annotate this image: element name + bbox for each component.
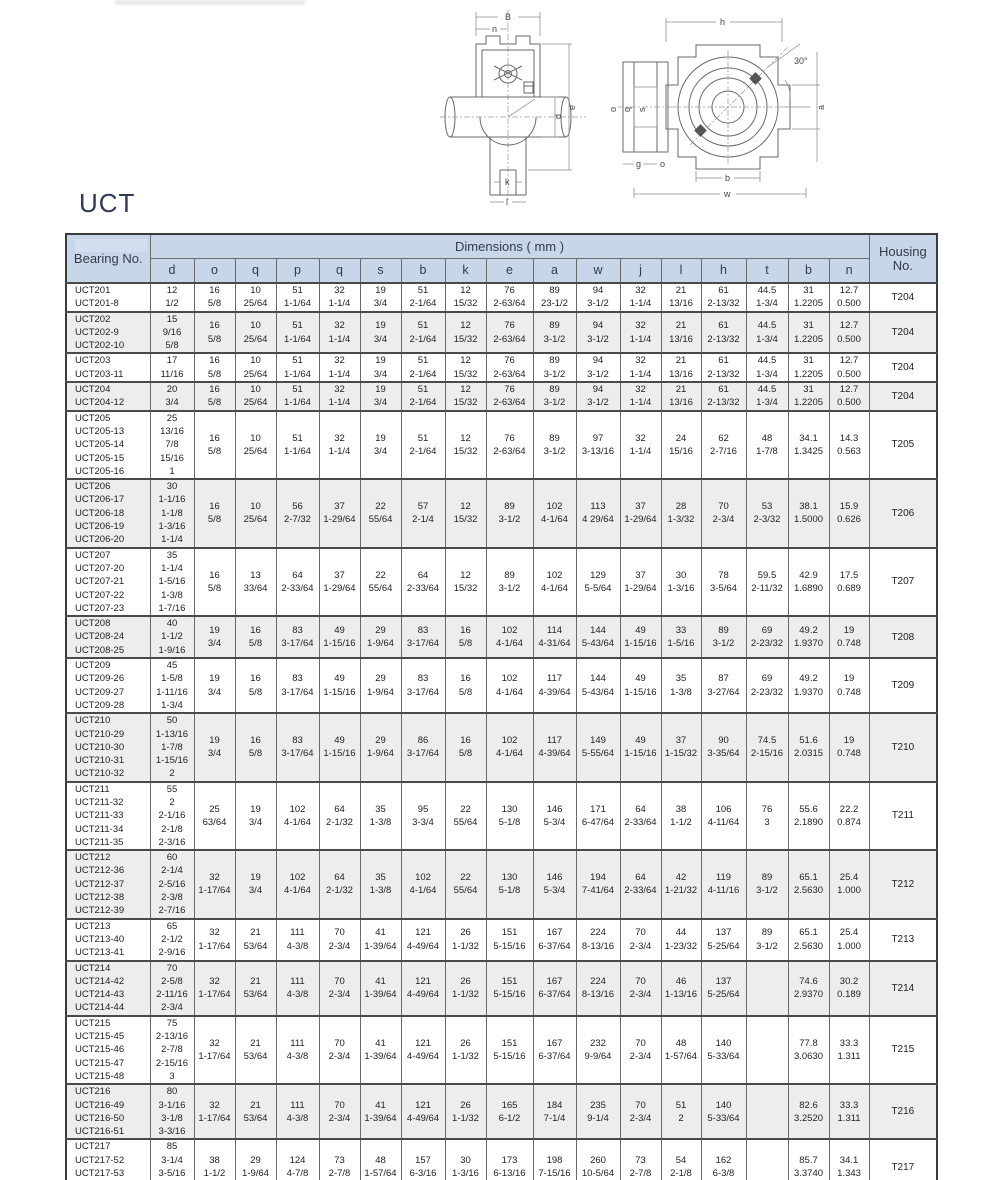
column-header-p: p: [276, 258, 319, 283]
bearing-row-UCT217: UCT217UCT217-52UCT217-53UCT217-55853-1/4…: [66, 1139, 937, 1180]
bearing-row-UCT216: UCT216UCT216-49UCT216-50UCT216-51803-1/1…: [66, 1084, 937, 1139]
dim-cell-t-13: 893-1/2: [746, 919, 788, 961]
bearing-row-UCT204: UCT204UCT204-12203/4165/81025/64511-1/64…: [66, 382, 937, 411]
dim-cell-j-10: 732-7/8: [620, 1139, 661, 1180]
dim-cell-q-3: 321-1/4: [319, 382, 360, 411]
dim-cell-k-6: 1215/32: [445, 411, 486, 479]
shaft-dia-cell: 752-13/162-7/82-15/163: [150, 1016, 194, 1084]
take-up-unit-drawing: B n: [438, 2, 878, 206]
dim-cell-b-14: 311.2205: [788, 353, 829, 382]
dim-cell-p-2: 511-1/64: [276, 411, 319, 479]
housing-no-cell: T212: [869, 850, 937, 918]
dim-cell-j-10: 371-29/64: [620, 479, 661, 547]
dim-cell-e-7: 1736-13/16: [486, 1139, 533, 1180]
dim-cell-b-14: 42.91.6890: [788, 548, 829, 616]
dim-cell-s-4: 193/4: [360, 382, 401, 411]
dim-cell-p-2: 1024-1/64: [276, 850, 319, 918]
dim-cell-a-8: 893-1/2: [533, 411, 576, 479]
dim-label-30deg: 30°: [794, 56, 808, 66]
dim-cell-w-9: 1445-43/64: [576, 616, 620, 658]
dim-cell-o-0: 321-17/64: [194, 850, 235, 918]
dim-cell-b-5: 833-17/64: [401, 658, 445, 713]
dim-cell-o-0: 165/8: [194, 283, 235, 312]
dim-cell-l-11: 421-21/32: [661, 850, 701, 918]
dim-cell-q-3: 732-7/8: [319, 1139, 360, 1180]
shaft-dia-cell: 853-1/43-5/163-7/16: [150, 1139, 194, 1180]
bearing-numbers-cell: UCT208UCT208-24UCT208-25: [66, 616, 150, 658]
page-top-artifact: [115, 0, 305, 5]
dim-cell-b-5: 572-1/4: [401, 479, 445, 547]
dim-cell-n-15: 33.31.311: [829, 1016, 869, 1084]
dim-cell-j-10: 371-29/64: [620, 548, 661, 616]
bearing-row-UCT201: UCT201UCT201-8121/2165/81025/64511-1/643…: [66, 283, 937, 312]
dim-cell-t-13: [746, 961, 788, 1016]
dim-cell-j-10: 491-15/16: [620, 616, 661, 658]
dim-cell-q-3: 321-1/4: [319, 411, 360, 479]
housing-no-cell: T204: [869, 353, 937, 382]
dim-cell-b-14: 82.63.2520: [788, 1084, 829, 1139]
dim-label-b: b: [725, 173, 730, 183]
dim-cell-e-7: 1024-1/64: [486, 713, 533, 781]
dim-cell-q-1: 1025/64: [235, 411, 276, 479]
housing-no-cell: T204: [869, 283, 937, 312]
dim-label-o-bottom: o: [660, 159, 665, 169]
dim-cell-b-5: 1214-49/64: [401, 1016, 445, 1084]
dim-cell-b-14: 38.11.5000: [788, 479, 829, 547]
dim-cell-o-0: 165/8: [194, 312, 235, 354]
bearing-row-UCT206: UCT206UCT206-17UCT206-18UCT206-19UCT206-…: [66, 479, 937, 547]
dim-cell-q-1: 1025/64: [235, 479, 276, 547]
dim-cell-w-9: 26010-5/64: [576, 1139, 620, 1180]
dim-cell-t-13: 763: [746, 782, 788, 850]
dim-cell-o-0: 381-1/2: [194, 1139, 235, 1180]
bearing-numbers-cell: UCT212UCT212-36UCT212-37UCT212-38UCT212-…: [66, 850, 150, 918]
dim-cell-l-11: 461-13/16: [661, 961, 701, 1016]
dim-cell-s-4: 291-9/64: [360, 616, 401, 658]
dim-cell-j-10: 321-1/4: [620, 411, 661, 479]
dim-label-B: B: [505, 12, 511, 22]
dim-cell-q-1: 2153/64: [235, 1084, 276, 1139]
dim-cell-p-2: 1114-3/8: [276, 919, 319, 961]
bearing-row-UCT215: UCT215UCT215-45UCT215-46UCT215-47UCT215-…: [66, 1016, 937, 1084]
dim-cell-w-9: 1445-43/64: [576, 658, 620, 713]
housing-no-cell: T208: [869, 616, 937, 658]
column-header-h: h: [701, 258, 746, 283]
dim-cell-k-6: 2255/64: [445, 782, 486, 850]
dim-cell-h-12: 612-13/32: [701, 382, 746, 411]
dim-cell-t-13: 692-23/32: [746, 616, 788, 658]
shaft-dia-cell: 451-5/81-11/161-3/4: [150, 658, 194, 713]
dim-cell-o-0: 2563/64: [194, 782, 235, 850]
dim-cell-p-2: 1114-3/8: [276, 1016, 319, 1084]
dim-cell-q-1: 165/8: [235, 616, 276, 658]
column-header-d: d: [150, 258, 194, 283]
bearing-row-UCT211: UCT211UCT211-32UCT211-33UCT211-34UCT211-…: [66, 782, 937, 850]
bearing-row-UCT210: UCT210UCT210-29UCT210-30UCT210-31UCT210-…: [66, 713, 937, 781]
dim-cell-j-10: 491-15/16: [620, 658, 661, 713]
dim-cell-e-7: 1515-15/16: [486, 919, 533, 961]
housing-no-cell: T209: [869, 658, 937, 713]
dim-cell-e-7: 762-63/64: [486, 353, 533, 382]
housing-no-cell: T214: [869, 961, 937, 1016]
dim-cell-o-0: 193/4: [194, 658, 235, 713]
dim-cell-n-15: 30.20.189: [829, 961, 869, 1016]
table-body: UCT201UCT201-8121/2165/81025/64511-1/643…: [66, 283, 937, 1180]
dim-cell-l-11: 481-57/64: [661, 1016, 701, 1084]
series-title: UCT: [79, 188, 135, 219]
bearing-numbers-cell: UCT202UCT202-9UCT202-10: [66, 312, 150, 354]
dim-cell-w-9: 1134 29/64: [576, 479, 620, 547]
dim-label-o-left: o: [608, 107, 618, 112]
housing-no-cell: T215: [869, 1016, 937, 1084]
dim-cell-w-9: 2359-1/4: [576, 1084, 620, 1139]
dim-cell-b-5: 642-33/64: [401, 548, 445, 616]
dim-cell-l-11: 2113/16: [661, 353, 701, 382]
dim-cell-k-6: 165/8: [445, 616, 486, 658]
housing-no-cell: T207: [869, 548, 937, 616]
dim-cell-e-7: 762-63/64: [486, 312, 533, 354]
dim-cell-w-9: 1947-41/64: [576, 850, 620, 918]
dim-cell-s-4: 411-39/64: [360, 1016, 401, 1084]
dim-label-w: w: [723, 189, 731, 199]
dim-cell-p-2: 511-1/64: [276, 283, 319, 312]
dim-cell-w-9: 1495-55/64: [576, 713, 620, 781]
dim-cell-w-9: 2248-13/16: [576, 961, 620, 1016]
dim-cell-a-8: 1174-39/64: [533, 713, 576, 781]
dim-cell-b-14: 65.12.5630: [788, 919, 829, 961]
dim-cell-t-13: 44.51-3/4: [746, 353, 788, 382]
column-header-o: o: [194, 258, 235, 283]
dim-cell-b-14: 74.62.9370: [788, 961, 829, 1016]
dim-cell-h-12: 893-1/2: [701, 616, 746, 658]
dim-cell-a-8: 1676-37/64: [533, 1016, 576, 1084]
dim-cell-b-14: 311.2205: [788, 283, 829, 312]
dim-cell-l-11: 381-1/2: [661, 782, 701, 850]
dim-cell-l-11: 441-23/32: [661, 919, 701, 961]
dim-label-h: h: [720, 17, 725, 27]
dim-cell-q-3: 642-1/32: [319, 850, 360, 918]
bearing-numbers-cell: UCT207UCT207-20UCT207-21UCT207-22UCT207-…: [66, 548, 150, 616]
catalog-page: B n: [0, 0, 992, 1180]
dim-cell-q-1: 1025/64: [235, 312, 276, 354]
watermark-smudge: [75, 239, 147, 252]
dim-cell-b-14: 51.62.0315: [788, 713, 829, 781]
bearing-numbers-cell: UCT206UCT206-17UCT206-18UCT206-19UCT206-…: [66, 479, 150, 547]
dim-cell-b-5: 512-1/64: [401, 411, 445, 479]
dim-cell-s-4: 351-3/8: [360, 782, 401, 850]
dim-cell-s-4: 411-39/64: [360, 919, 401, 961]
dim-cell-n-15: 190.748: [829, 616, 869, 658]
dim-cell-o-0: 193/4: [194, 713, 235, 781]
dim-cell-j-10: 702-3/4: [620, 1084, 661, 1139]
dim-cell-o-0: 165/8: [194, 411, 235, 479]
dim-cell-b-14: 34.11.3425: [788, 411, 829, 479]
dim-label-e: e: [567, 105, 577, 110]
front-view-drawing: h 30°: [608, 17, 826, 199]
dim-cell-q-3: 371-29/64: [319, 548, 360, 616]
dim-cell-h-12: 1375-25/64: [701, 961, 746, 1016]
dim-cell-n-15: 22.20.874: [829, 782, 869, 850]
column-header-q: q: [235, 258, 276, 283]
dim-cell-l-11: 331-5/16: [661, 616, 701, 658]
dim-cell-o-0: 321-17/64: [194, 919, 235, 961]
dim-cell-a-8: 893-1/2: [533, 382, 576, 411]
dim-cell-p-2: 1244-7/8: [276, 1139, 319, 1180]
dim-cell-b-5: 863-17/64: [401, 713, 445, 781]
dim-cell-w-9: 943-1/2: [576, 382, 620, 411]
dim-cell-b-14: 49.21.9370: [788, 658, 829, 713]
dim-cell-s-4: 481-57/64: [360, 1139, 401, 1180]
dim-cell-e-7: 1305-1/8: [486, 850, 533, 918]
housing-no-cell: T206: [869, 479, 937, 547]
bearing-row-UCT213: UCT213UCT213-40UCT213-41652-1/22-9/16321…: [66, 919, 937, 961]
dim-cell-t-13: 44.51-3/4: [746, 382, 788, 411]
dim-cell-k-6: 261-1/32: [445, 961, 486, 1016]
bearing-row-UCT205: UCT205UCT205-13UCT205-14UCT205-15UCT205-…: [66, 411, 937, 479]
dim-cell-j-10: 642-33/64: [620, 850, 661, 918]
dim-cell-t-13: 44.51-3/4: [746, 283, 788, 312]
shaft-dia-cell: 652-1/22-9/16: [150, 919, 194, 961]
dim-label-g: g: [636, 159, 641, 169]
dim-cell-a-8: 1847-1/4: [533, 1084, 576, 1139]
shaft-dia-cell: 803-1/163-1/83-3/16: [150, 1084, 194, 1139]
dim-cell-q-1: 1025/64: [235, 353, 276, 382]
dim-cell-j-10: 321-1/4: [620, 283, 661, 312]
housing-no-header: Housing No.: [869, 234, 937, 283]
dim-cell-w-9: 943-1/2: [576, 353, 620, 382]
dim-cell-q-1: 1333/64: [235, 548, 276, 616]
dim-cell-t-13: 532-3/32: [746, 479, 788, 547]
dim-cell-k-6: 1215/32: [445, 479, 486, 547]
shaft-dia-cell: 159/165/8: [150, 312, 194, 354]
dim-cell-w-9: 943-1/2: [576, 312, 620, 354]
dim-cell-q-3: 702-3/4: [319, 1016, 360, 1084]
table-header: Bearing No. Dimensions ( mm ) Housing No…: [66, 234, 937, 283]
dim-cell-s-4: 411-39/64: [360, 1084, 401, 1139]
dim-cell-h-12: 622-7/16: [701, 411, 746, 479]
housing-no-cell: T205: [869, 411, 937, 479]
dim-cell-n-15: 190.748: [829, 658, 869, 713]
dim-cell-b-5: 1214-49/64: [401, 1084, 445, 1139]
dim-label-k: k: [505, 177, 510, 187]
shaft-dia-cell: 602-1/42-5/162-3/82-7/16: [150, 850, 194, 918]
dim-cell-n-15: 12.70.500: [829, 283, 869, 312]
dim-cell-a-8: 1024-1/64: [533, 479, 576, 547]
dim-cell-k-6: 301-3/16: [445, 1139, 486, 1180]
dim-cell-h-12: 612-13/32: [701, 353, 746, 382]
dim-cell-e-7: 1024-1/64: [486, 616, 533, 658]
dim-cell-k-6: 165/8: [445, 658, 486, 713]
dim-cell-h-12: 612-13/32: [701, 283, 746, 312]
dim-cell-h-12: 1064-11/64: [701, 782, 746, 850]
housing-no-cell: T216: [869, 1084, 937, 1139]
dim-cell-l-11: 301-3/16: [661, 548, 701, 616]
dim-cell-q-3: 321-1/4: [319, 312, 360, 354]
dim-cell-n-15: 12.70.500: [829, 382, 869, 411]
dim-cell-b-5: 1214-49/64: [401, 919, 445, 961]
dim-cell-h-12: 1375-25/64: [701, 919, 746, 961]
dim-cell-q-3: 702-3/4: [319, 1084, 360, 1139]
bearing-numbers-cell: UCT205UCT205-13UCT205-14UCT205-15UCT205-…: [66, 411, 150, 479]
dim-cell-p-2: 833-17/64: [276, 658, 319, 713]
dim-cell-b-14: 311.2205: [788, 382, 829, 411]
column-header-b: b: [788, 258, 829, 283]
dim-label-l: l: [506, 197, 508, 206]
dim-cell-n-15: 33.31.311: [829, 1084, 869, 1139]
dim-cell-b-5: 512-1/64: [401, 312, 445, 354]
housing-no-cell: T217: [869, 1139, 937, 1180]
dim-cell-h-12: 903-35/64: [701, 713, 746, 781]
bearing-numbers-cell: UCT215UCT215-45UCT215-46UCT215-47UCT215-…: [66, 1016, 150, 1084]
housing-no-cell: T210: [869, 713, 937, 781]
column-header-q: q: [319, 258, 360, 283]
dim-cell-j-10: 321-1/4: [620, 353, 661, 382]
dim-cell-q-1: 193/4: [235, 782, 276, 850]
housing-no-cell: T204: [869, 312, 937, 354]
bearing-numbers-cell: UCT211UCT211-32UCT211-33UCT211-34UCT211-…: [66, 782, 150, 850]
dim-cell-a-8: 1174-39/64: [533, 658, 576, 713]
dim-cell-t-13: [746, 1016, 788, 1084]
bearing-no-header: Bearing No.: [66, 234, 150, 283]
dim-cell-e-7: 762-63/64: [486, 283, 533, 312]
dim-cell-o-0: 321-17/64: [194, 961, 235, 1016]
dim-cell-l-11: 2113/16: [661, 382, 701, 411]
dim-cell-w-9: 2248-13/16: [576, 919, 620, 961]
dimensions-table: Bearing No. Dimensions ( mm ) Housing No…: [65, 233, 938, 1180]
dim-cell-o-0: 321-17/64: [194, 1016, 235, 1084]
dim-cell-p-2: 833-17/64: [276, 616, 319, 658]
bearing-row-UCT214: UCT214UCT214-42UCT214-43UCT214-44702-5/8…: [66, 961, 937, 1016]
dim-cell-e-7: 893-1/2: [486, 548, 533, 616]
dim-cell-k-6: 261-1/32: [445, 1084, 486, 1139]
dim-cell-e-7: 1515-15/16: [486, 1016, 533, 1084]
dim-cell-w-9: 1716-47/64: [576, 782, 620, 850]
housing-no-cell: T204: [869, 382, 937, 411]
dim-cell-q-1: 1025/64: [235, 382, 276, 411]
shaft-dia-cell: 2513/167/815/161: [150, 411, 194, 479]
dim-cell-q-3: 321-1/4: [319, 283, 360, 312]
dim-cell-p-2: 511-1/64: [276, 312, 319, 354]
bearing-numbers-cell: UCT204UCT204-12: [66, 382, 150, 411]
dim-label-s: s: [637, 107, 647, 112]
dim-cell-t-13: 74.52-15/16: [746, 713, 788, 781]
dim-cell-b-5: 512-1/64: [401, 283, 445, 312]
bearing-numbers-cell: UCT213UCT213-40UCT213-41: [66, 919, 150, 961]
dim-cell-b-5: 1024-1/64: [401, 850, 445, 918]
dim-cell-q-1: 2153/64: [235, 961, 276, 1016]
dim-cell-b-5: 512-1/64: [401, 353, 445, 382]
dim-cell-b-5: 833-17/64: [401, 616, 445, 658]
dim-cell-o-0: 321-17/64: [194, 1084, 235, 1139]
dim-cell-q-1: 165/8: [235, 658, 276, 713]
column-header-k: k: [445, 258, 486, 283]
dim-cell-n-15: 25.41.000: [829, 919, 869, 961]
shaft-dia-cell: 5522-1/162-1/82-3/16: [150, 782, 194, 850]
bearing-row-UCT202: UCT202UCT202-9UCT202-10159/165/8165/8102…: [66, 312, 937, 354]
dim-cell-w-9: 1295-5/64: [576, 548, 620, 616]
housing-no-cell: T211: [869, 782, 937, 850]
dim-cell-t-13: [746, 1139, 788, 1180]
dim-cell-a-8: 1465-3/4: [533, 782, 576, 850]
dim-cell-k-6: 1215/32: [445, 548, 486, 616]
dim-cell-s-4: 2255/64: [360, 548, 401, 616]
bearing-numbers-cell: UCT217UCT217-52UCT217-53UCT217-55: [66, 1139, 150, 1180]
dim-cell-a-8: 8923-1/2: [533, 283, 576, 312]
column-header-n: n: [829, 258, 869, 283]
dim-cell-s-4: 193/4: [360, 353, 401, 382]
dim-cell-l-11: 2113/16: [661, 283, 701, 312]
dim-cell-a-8: 1987-15/16: [533, 1139, 576, 1180]
bearing-row-UCT209: UCT209UCT209-26UCT209-27UCT209-28451-5/8…: [66, 658, 937, 713]
column-header-s: s: [360, 258, 401, 283]
dim-cell-b-5: 512-1/64: [401, 382, 445, 411]
dim-cell-w-9: 2329-9/64: [576, 1016, 620, 1084]
bearing-row-UCT203: UCT203UCT203-111711/16165/81025/64511-1/…: [66, 353, 937, 382]
dim-cell-w-9: 943-1/2: [576, 283, 620, 312]
dim-cell-h-12: 783-5/64: [701, 548, 746, 616]
dimensions-header: Dimensions ( mm ): [150, 234, 869, 258]
dim-cell-j-10: 642-33/64: [620, 782, 661, 850]
dim-cell-s-4: 2255/64: [360, 479, 401, 547]
dim-cell-a-8: 1144-31/64: [533, 616, 576, 658]
dim-cell-q-3: 321-1/4: [319, 353, 360, 382]
dim-cell-k-6: 165/8: [445, 713, 486, 781]
side-view-drawing: B n: [440, 10, 586, 206]
dim-cell-e-7: 893-1/2: [486, 479, 533, 547]
dim-cell-h-12: 873-27/64: [701, 658, 746, 713]
bearing-numbers-cell: UCT216UCT216-49UCT216-50UCT216-51: [66, 1084, 150, 1139]
bearing-row-UCT207: UCT207UCT207-20UCT207-21UCT207-22UCT207-…: [66, 548, 937, 616]
dim-cell-h-12: 702-3/4: [701, 479, 746, 547]
dim-cell-b-14: 55.62.1890: [788, 782, 829, 850]
shaft-dia-cell: 1711/16: [150, 353, 194, 382]
dim-cell-j-10: 321-1/4: [620, 312, 661, 354]
dim-cell-o-0: 193/4: [194, 616, 235, 658]
dim-cell-o-0: 165/8: [194, 353, 235, 382]
dimensions-table-wrapper: Bearing No. Dimensions ( mm ) Housing No…: [65, 233, 938, 1180]
dim-cell-a-8: 893-1/2: [533, 353, 576, 382]
dim-cell-a-8: 893-1/2: [533, 312, 576, 354]
bearing-row-UCT208: UCT208UCT208-24UCT208-25401-1/21-9/16193…: [66, 616, 937, 658]
dim-cell-n-15: 34.11.343: [829, 1139, 869, 1180]
dim-cell-t-13: 692-23/32: [746, 658, 788, 713]
bearing-numbers-cell: UCT210UCT210-29UCT210-30UCT210-31UCT210-…: [66, 713, 150, 781]
bearing-numbers-cell: UCT209UCT209-26UCT209-27UCT209-28: [66, 658, 150, 713]
dim-cell-s-4: 291-9/64: [360, 658, 401, 713]
dim-cell-h-12: 1405-33/64: [701, 1084, 746, 1139]
dim-cell-e-7: 1024-1/64: [486, 658, 533, 713]
bearing-numbers-cell: UCT201UCT201-8: [66, 283, 150, 312]
dim-cell-a-8: 1676-37/64: [533, 919, 576, 961]
dim-cell-n-15: 14.30.563: [829, 411, 869, 479]
dim-cell-q-3: 491-15/16: [319, 616, 360, 658]
dim-cell-l-11: 351-3/8: [661, 658, 701, 713]
dim-cell-n-15: 12.70.500: [829, 312, 869, 354]
dim-cell-t-13: 893-1/2: [746, 850, 788, 918]
dim-cell-o-0: 165/8: [194, 479, 235, 547]
shaft-dia-cell: 121/2: [150, 283, 194, 312]
shaft-dia-cell: 301-1/161-1/81-3/161-1/4: [150, 479, 194, 547]
dim-label-n: n: [492, 24, 497, 34]
dim-cell-p-2: 833-17/64: [276, 713, 319, 781]
dim-cell-p-2: 562-7/32: [276, 479, 319, 547]
dim-cell-q-3: 371-29/64: [319, 479, 360, 547]
dim-cell-b-5: 1576-3/16: [401, 1139, 445, 1180]
dim-cell-s-4: 193/4: [360, 312, 401, 354]
dim-cell-e-7: 1656-1/2: [486, 1084, 533, 1139]
dim-cell-e-7: 762-63/64: [486, 382, 533, 411]
bearing-numbers-cell: UCT203UCT203-11: [66, 353, 150, 382]
